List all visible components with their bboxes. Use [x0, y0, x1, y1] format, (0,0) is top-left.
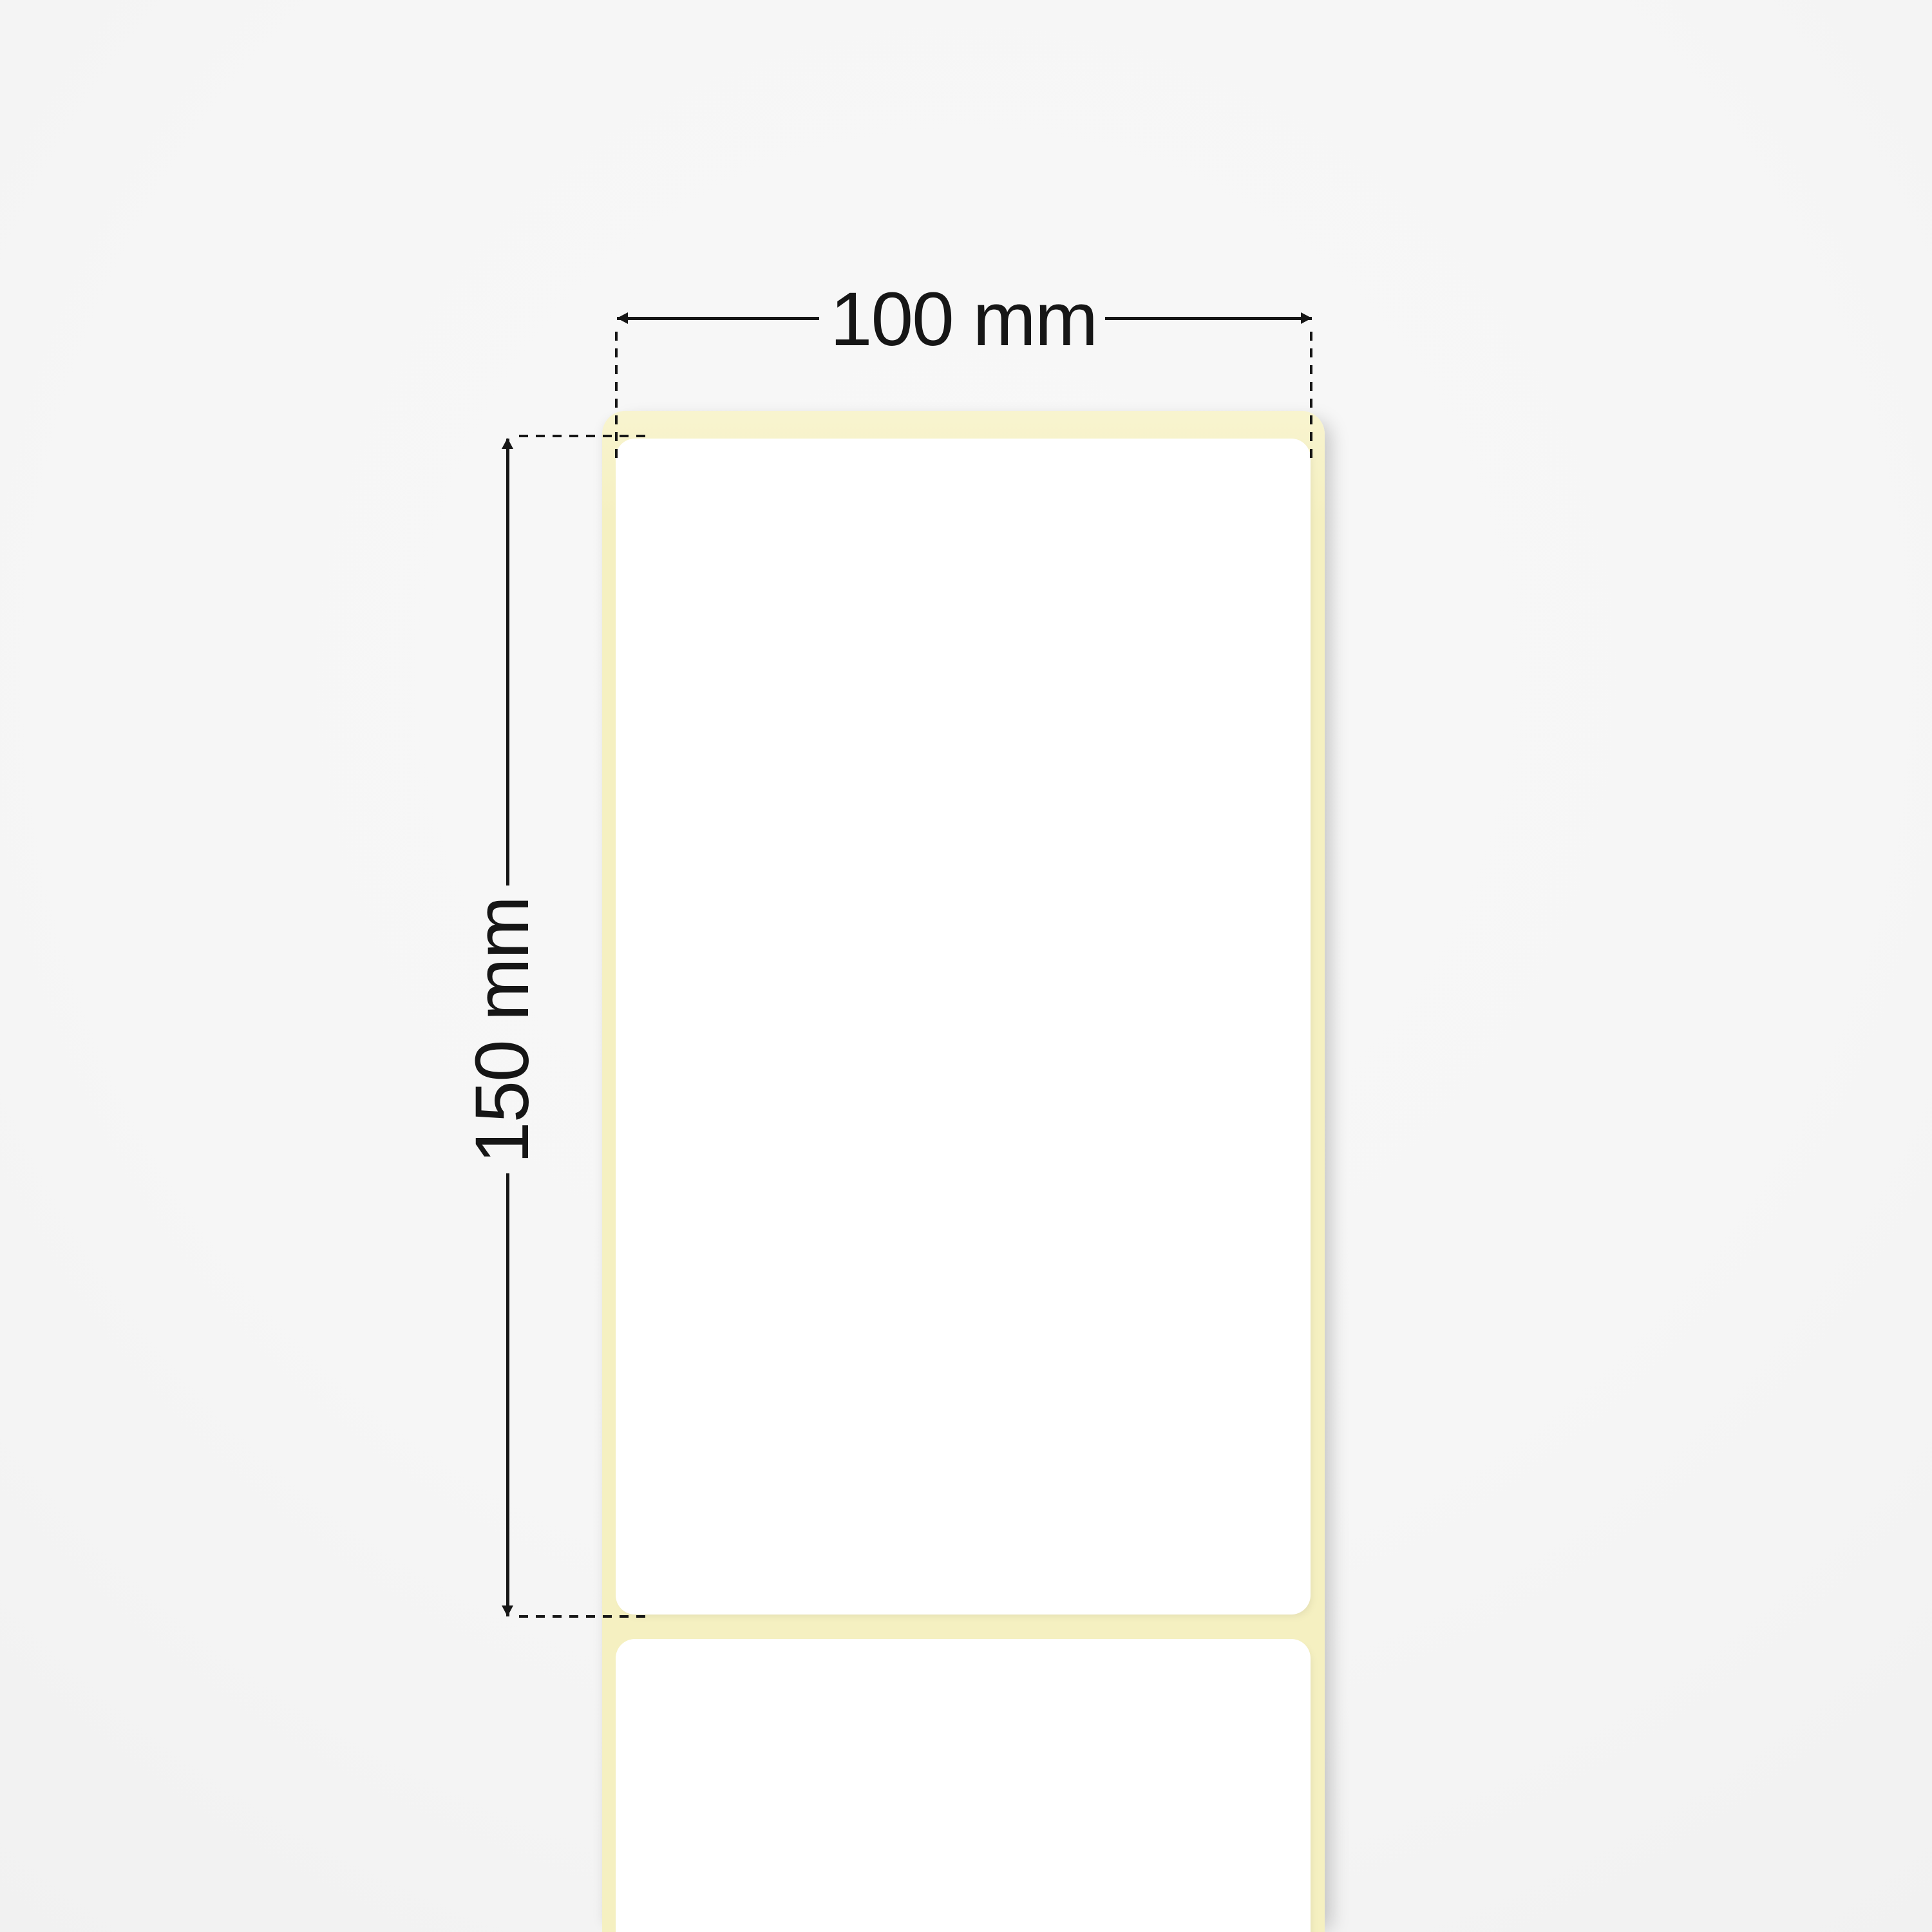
label-sticker-top	[616, 439, 1311, 1615]
width-extension-line-left	[615, 332, 618, 461]
width-arrow-line-right	[1105, 317, 1312, 320]
height-arrow-line-top	[506, 439, 509, 885]
label-sticker-bottom	[616, 1639, 1311, 1932]
product-image-canvas: 100 mm 150 mm	[0, 0, 1932, 1932]
height-extension-line-bottom	[519, 1615, 645, 1618]
height-arrowhead-down-icon	[502, 1605, 513, 1616]
width-arrow-line-left	[617, 317, 819, 320]
width-arrowhead-right-icon	[1301, 312, 1312, 324]
width-dimension-label: 100 mm	[806, 281, 1121, 358]
height-arrow-line-bottom	[506, 1173, 509, 1616]
width-extension-line-right	[1310, 332, 1312, 461]
height-arrowhead-up-icon	[502, 438, 513, 449]
width-arrowhead-left-icon	[617, 312, 628, 324]
height-extension-line-top	[519, 435, 645, 437]
height-dimension-label: 150 mm	[464, 873, 541, 1188]
